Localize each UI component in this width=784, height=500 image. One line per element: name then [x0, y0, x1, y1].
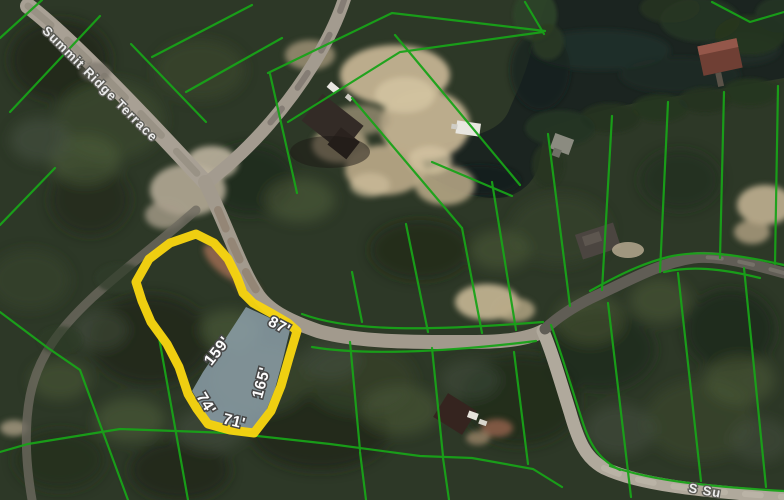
aerial-map-canvas[interactable]: Summit Ridge Terrace S Su 87' 159' 165' … — [0, 0, 784, 500]
map-view[interactable]: Summit Ridge Terrace S Su 87' 159' 165' … — [0, 0, 784, 500]
